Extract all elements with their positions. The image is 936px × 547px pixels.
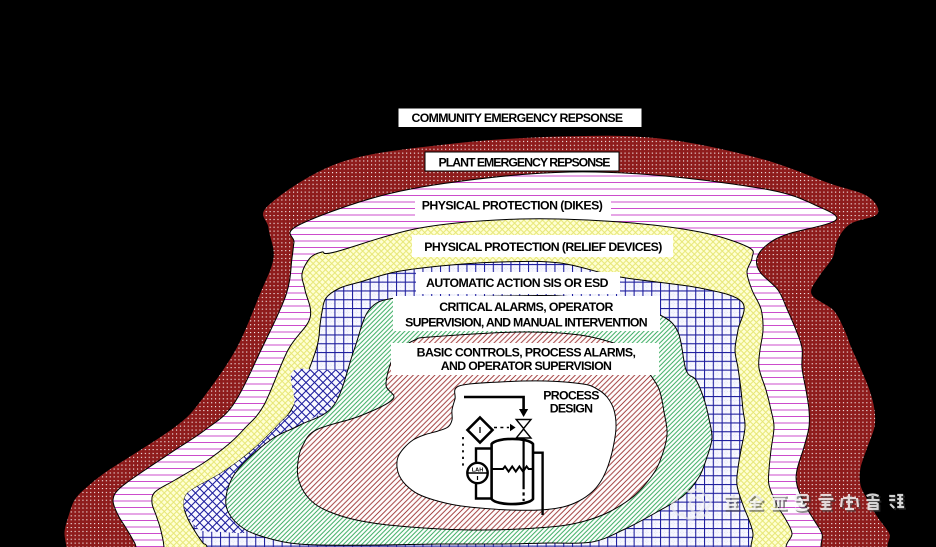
svg-text:PHYSICAL PROTECTION (RELIEF DE: PHYSICAL PROTECTION (RELIEF DEVICES) (424, 240, 662, 254)
svg-text:BASIC CONTROLS, PROCESS ALARMS: BASIC CONTROLS, PROCESS ALARMS, (417, 346, 636, 360)
svg-text:AUTOMATIC ACTION SIS OR ESD: AUTOMATIC ACTION SIS OR ESD (426, 276, 609, 290)
svg-text:PLANT EMERGENCY REPSONSE: PLANT EMERGENCY REPSONSE (439, 156, 611, 170)
svg-text:CRITICAL ALARMS, OPERATOR: CRITICAL ALARMS, OPERATOR (439, 300, 613, 314)
svg-text:LAH: LAH (472, 468, 484, 474)
svg-text:COMMUNITY EMERGENCY REPSONSE: COMMUNITY EMERGENCY REPSONSE (412, 111, 623, 125)
svg-text:SUPERVISION, AND MANUAL INTERV: SUPERVISION, AND MANUAL INTERVENTION (405, 316, 648, 330)
svg-text:PROCESS: PROCESS (543, 388, 599, 402)
svg-text:PHYSICAL PROTECTION (DIKES): PHYSICAL PROTECTION (DIKES) (422, 199, 603, 213)
svg-text:DESIGN: DESIGN (550, 402, 593, 416)
svg-text:AND OPERATOR SUPERVISION: AND OPERATOR SUPERVISION (441, 359, 612, 373)
